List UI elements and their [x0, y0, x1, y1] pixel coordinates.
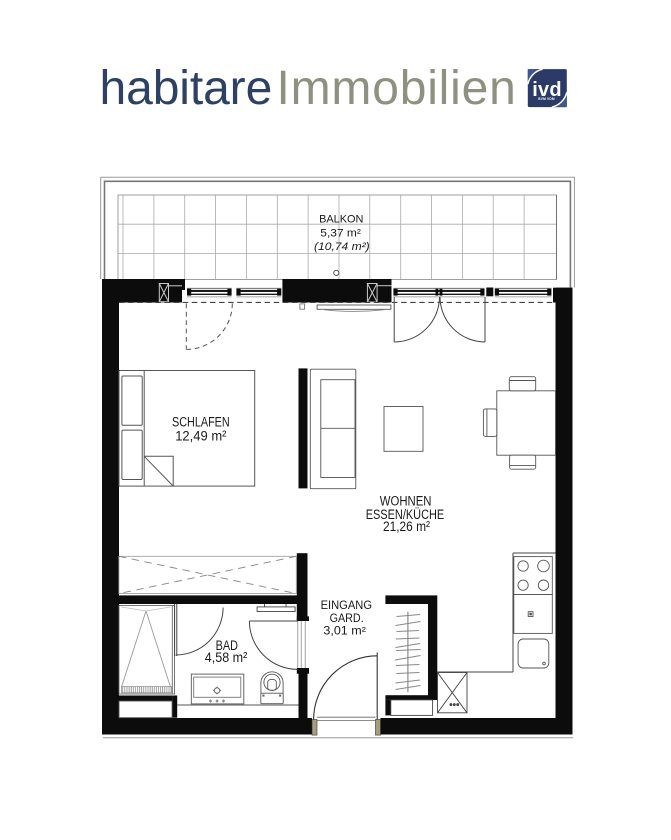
- svg-text:GARD.: GARD.: [330, 613, 364, 625]
- svg-text:(10,74 m²): (10,74 m²): [314, 241, 370, 253]
- svg-text:Immobilien: Immobilien: [277, 62, 517, 115]
- svg-text:BALKON: BALKON: [319, 214, 363, 226]
- svg-text:21,26 m²: 21,26 m²: [383, 519, 430, 535]
- svg-text:12,49 m²: 12,49 m²: [175, 429, 227, 445]
- svg-text:5,37 m²: 5,37 m²: [320, 228, 361, 240]
- svg-text:4,58 m²: 4,58 m²: [205, 650, 248, 666]
- svg-text:EINGANG: EINGANG: [321, 600, 372, 612]
- svg-text:habitare: habitare: [100, 62, 273, 115]
- svg-text:BVM VDM: BVM VDM: [538, 97, 555, 101]
- svg-text:3,01 m²: 3,01 m²: [323, 626, 366, 638]
